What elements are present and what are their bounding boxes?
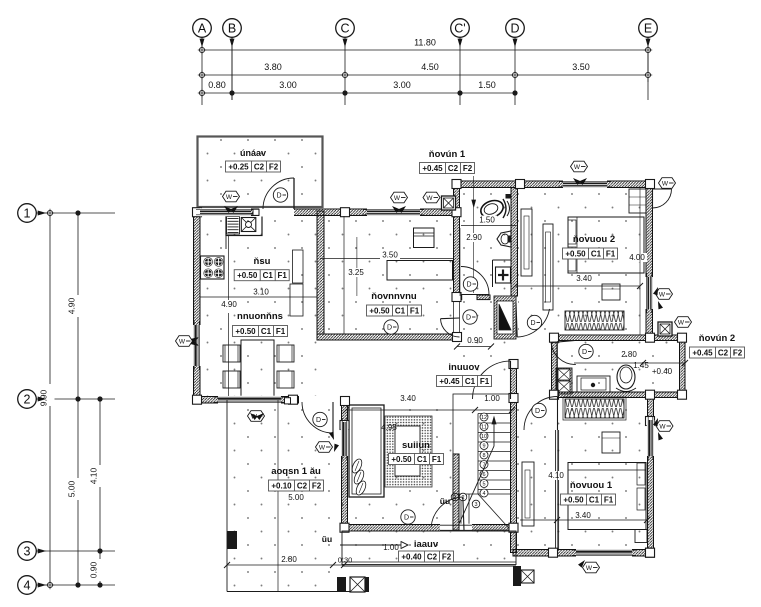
svg-text:ňovún 1: ňovún 1 xyxy=(429,149,466,160)
svg-text:+0.50: +0.50 xyxy=(563,496,584,505)
svg-text:A: A xyxy=(198,21,207,35)
svg-text:+0.45: +0.45 xyxy=(422,164,443,173)
svg-text:nnuonňns: nnuonňns xyxy=(237,311,283,322)
svg-text:4.10: 4.10 xyxy=(89,467,99,484)
svg-text:suiiun: suiiun xyxy=(402,440,430,451)
svg-text:W: W xyxy=(319,444,326,451)
svg-text:+0.40: +0.40 xyxy=(652,367,673,376)
svg-text:ňsu: ňsu xyxy=(254,256,271,267)
svg-text:ňovnnvnu: ňovnnvnu xyxy=(371,291,417,302)
svg-text:únáav: únáav xyxy=(240,148,266,158)
svg-text:1.50: 1.50 xyxy=(478,80,496,90)
svg-text:C2: C2 xyxy=(718,349,729,358)
svg-text:+0.50: +0.50 xyxy=(391,455,412,464)
svg-text:5.00: 5.00 xyxy=(288,493,304,502)
svg-text:F1: F1 xyxy=(410,307,420,316)
svg-text:4.00: 4.00 xyxy=(629,253,645,262)
svg-text:3.00: 3.00 xyxy=(393,80,411,90)
svg-text:2.90: 2.90 xyxy=(466,233,482,242)
svg-text:2.80: 2.80 xyxy=(621,350,637,359)
svg-text:5.00: 5.00 xyxy=(67,480,77,497)
svg-text:C2: C2 xyxy=(254,163,265,172)
svg-text:2.80: 2.80 xyxy=(281,555,297,564)
svg-text:W: W xyxy=(574,164,581,171)
svg-text:W: W xyxy=(586,565,593,572)
svg-text:F2: F2 xyxy=(733,349,743,358)
svg-text:4.90: 4.90 xyxy=(67,297,77,314)
svg-text:ŭu: ŭu xyxy=(440,496,450,506)
svg-text:D: D xyxy=(316,417,321,424)
svg-text:3: 3 xyxy=(24,544,31,558)
svg-text:3.50: 3.50 xyxy=(382,251,398,260)
svg-text:1.00: 1.00 xyxy=(484,394,500,403)
svg-text:9: 9 xyxy=(482,444,485,450)
svg-text:F2: F2 xyxy=(269,163,279,172)
svg-text:0.90: 0.90 xyxy=(89,561,99,578)
svg-text:F2: F2 xyxy=(442,553,452,562)
svg-text:1.50: 1.50 xyxy=(479,216,495,225)
svg-text:4: 4 xyxy=(482,491,485,497)
svg-text:D: D xyxy=(404,515,409,522)
svg-text:1: 1 xyxy=(24,206,31,220)
svg-text:1.45: 1.45 xyxy=(633,361,649,370)
svg-text:W: W xyxy=(659,291,666,298)
svg-text:F1: F1 xyxy=(606,250,616,259)
svg-text:+0.40: +0.40 xyxy=(401,553,422,562)
svg-text:11.80: 11.80 xyxy=(414,38,436,48)
svg-text:C1: C1 xyxy=(261,327,272,336)
svg-text:4.95: 4.95 xyxy=(381,423,397,432)
svg-text:3.80: 3.80 xyxy=(264,62,282,72)
svg-text:ňovuou 2: ňovuou 2 xyxy=(573,234,615,245)
svg-text:D: D xyxy=(466,315,471,322)
svg-text:6: 6 xyxy=(482,472,485,478)
svg-text:12: 12 xyxy=(481,415,487,421)
svg-text:D: D xyxy=(582,349,587,356)
svg-text:8: 8 xyxy=(482,453,485,459)
svg-text:W: W xyxy=(226,194,233,201)
svg-text:D: D xyxy=(530,320,535,327)
svg-text:F2: F2 xyxy=(312,482,322,491)
svg-text:3.40: 3.40 xyxy=(576,274,592,283)
svg-text:3.40: 3.40 xyxy=(575,511,591,520)
svg-text:ňovún 2: ňovún 2 xyxy=(699,333,735,344)
svg-text:+0.25: +0.25 xyxy=(228,163,249,172)
svg-text:C1: C1 xyxy=(263,271,274,280)
svg-text:D: D xyxy=(276,193,281,200)
svg-text:+0.45: +0.45 xyxy=(439,377,460,386)
svg-text:C2: C2 xyxy=(448,164,459,173)
svg-text:C: C xyxy=(340,21,349,35)
svg-text:C1: C1 xyxy=(591,250,602,259)
svg-text:5: 5 xyxy=(482,482,485,488)
svg-text:0.80: 0.80 xyxy=(208,80,226,90)
svg-text:3.25: 3.25 xyxy=(348,268,364,277)
svg-text:D: D xyxy=(535,408,540,415)
svg-text:11: 11 xyxy=(481,425,487,431)
svg-text:+0.45: +0.45 xyxy=(692,349,713,358)
svg-text:F1: F1 xyxy=(480,377,490,386)
svg-text:W: W xyxy=(678,319,685,326)
svg-text:3.10: 3.10 xyxy=(253,288,269,297)
svg-text:F1: F1 xyxy=(276,327,286,336)
svg-text:ňovuou 1: ňovuou 1 xyxy=(570,480,613,491)
svg-text:3.00: 3.00 xyxy=(279,80,297,90)
svg-text:+0.10: +0.10 xyxy=(271,482,292,491)
svg-text:3.40: 3.40 xyxy=(400,394,416,403)
svg-text:3: 3 xyxy=(474,502,477,508)
svg-text:D: D xyxy=(466,282,471,289)
svg-text:C1: C1 xyxy=(589,496,600,505)
svg-text:4.10: 4.10 xyxy=(548,471,564,480)
svg-text:4: 4 xyxy=(24,578,31,592)
svg-text:aoqsn 1 ău: aoqsn 1 ău xyxy=(271,466,321,477)
svg-text:C2: C2 xyxy=(427,553,438,562)
svg-text:B: B xyxy=(228,21,236,35)
svg-text:D: D xyxy=(510,21,519,35)
svg-text:iaauv: iaauv xyxy=(414,539,439,550)
svg-text:9.90: 9.90 xyxy=(39,389,49,406)
svg-text:ŭu: ŭu xyxy=(322,534,332,544)
svg-text:C1: C1 xyxy=(395,307,406,316)
svg-text:W: W xyxy=(659,423,666,430)
svg-text:F2: F2 xyxy=(463,164,473,173)
svg-text:4.50: 4.50 xyxy=(421,62,439,72)
svg-text:F1: F1 xyxy=(278,271,288,280)
svg-text:2: 2 xyxy=(24,392,31,406)
svg-text:F1: F1 xyxy=(604,496,614,505)
svg-text:4.90: 4.90 xyxy=(221,300,237,309)
svg-text:1.00: 1.00 xyxy=(383,543,399,552)
svg-text:E: E xyxy=(644,21,652,35)
svg-text:C2: C2 xyxy=(297,482,308,491)
svg-text:C1: C1 xyxy=(417,455,428,464)
svg-text:W: W xyxy=(394,195,401,202)
svg-text:+0.50: +0.50 xyxy=(235,327,256,336)
svg-text:10: 10 xyxy=(481,434,487,440)
svg-text:0.90: 0.90 xyxy=(467,336,483,345)
svg-text:0.30: 0.30 xyxy=(338,556,353,565)
svg-text:W: W xyxy=(426,195,433,202)
svg-text:3.50: 3.50 xyxy=(572,62,590,72)
svg-text:W: W xyxy=(662,180,669,187)
svg-text:C1: C1 xyxy=(465,377,476,386)
svg-text:F1: F1 xyxy=(432,455,442,464)
svg-text:W: W xyxy=(179,338,186,345)
svg-text:+0.50: +0.50 xyxy=(369,307,390,316)
svg-text:C': C' xyxy=(454,21,465,35)
svg-text:+0.50: +0.50 xyxy=(237,271,258,280)
svg-text:inuuov: inuuov xyxy=(448,362,480,373)
svg-text:+0.50: +0.50 xyxy=(565,250,586,259)
svg-text:D: D xyxy=(387,325,392,332)
